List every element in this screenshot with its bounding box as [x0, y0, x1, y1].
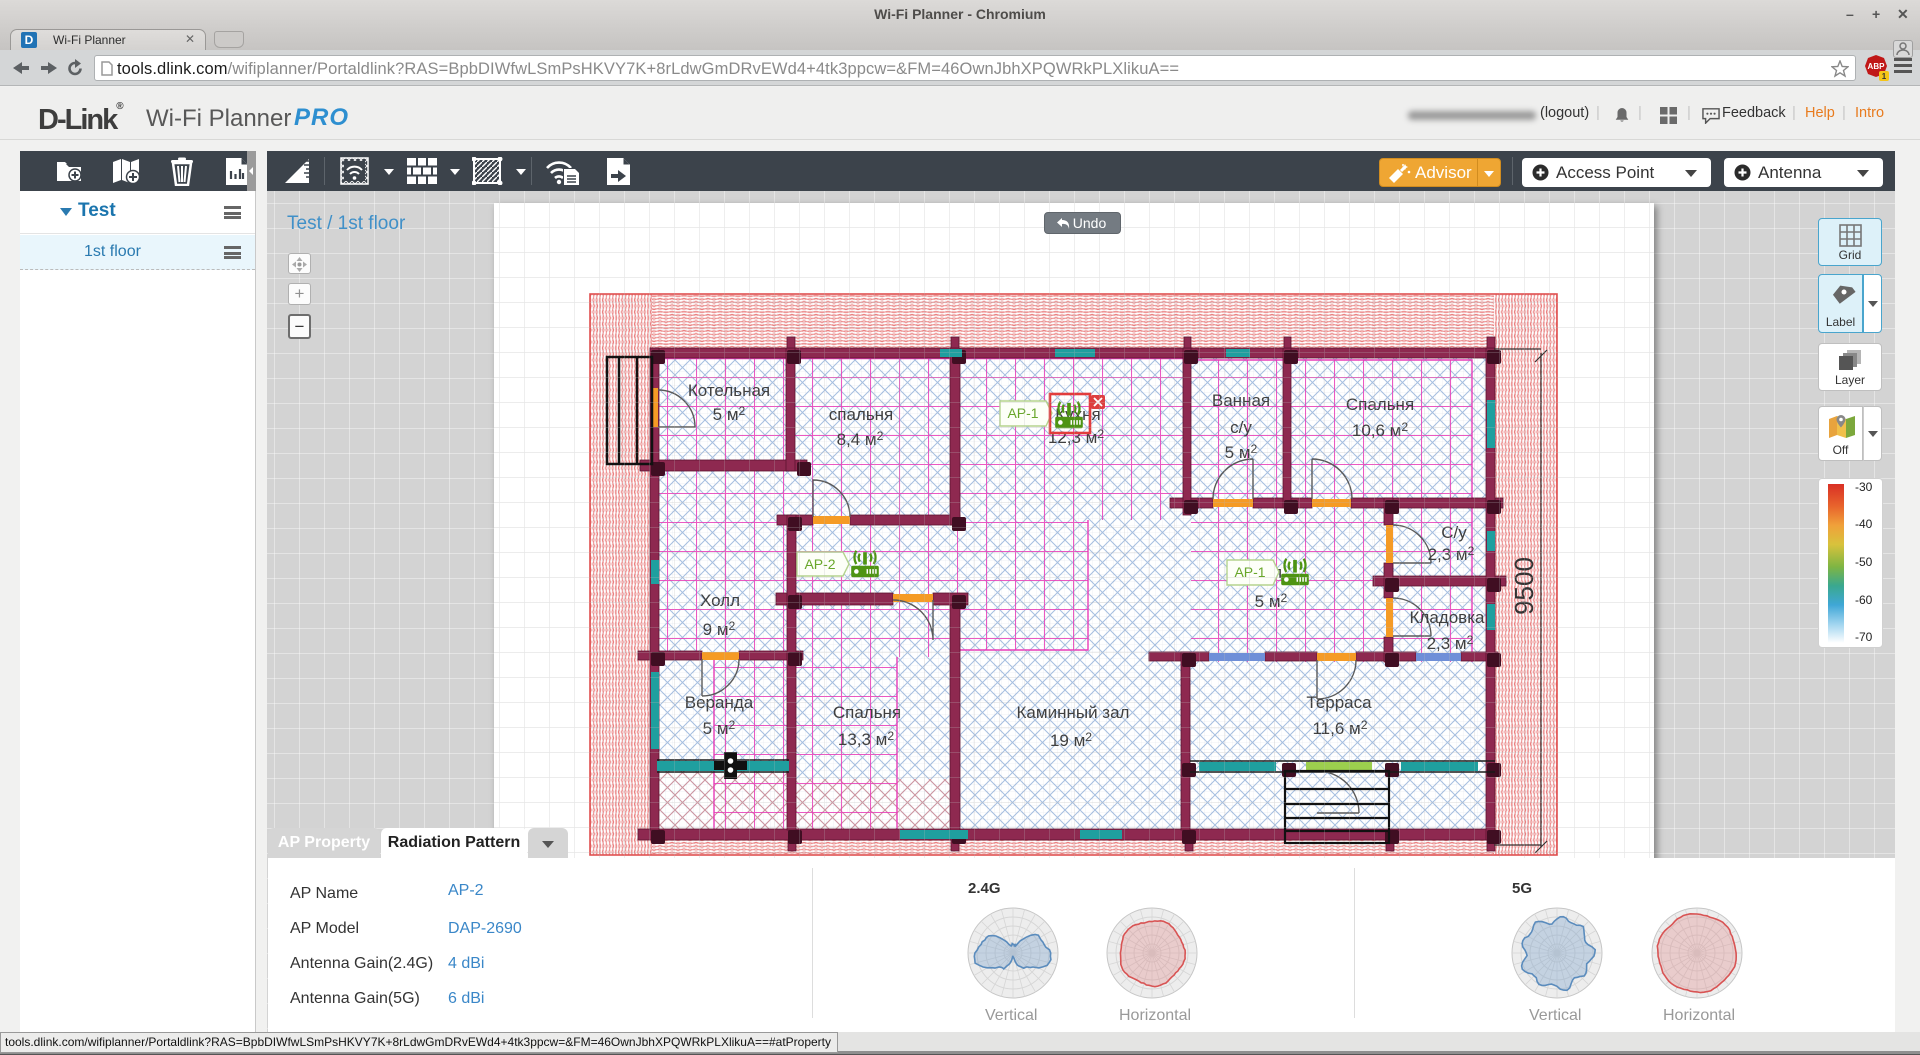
svg-text:ABP: ABP [1868, 62, 1886, 71]
svg-text:1: 1 [1882, 72, 1887, 81]
